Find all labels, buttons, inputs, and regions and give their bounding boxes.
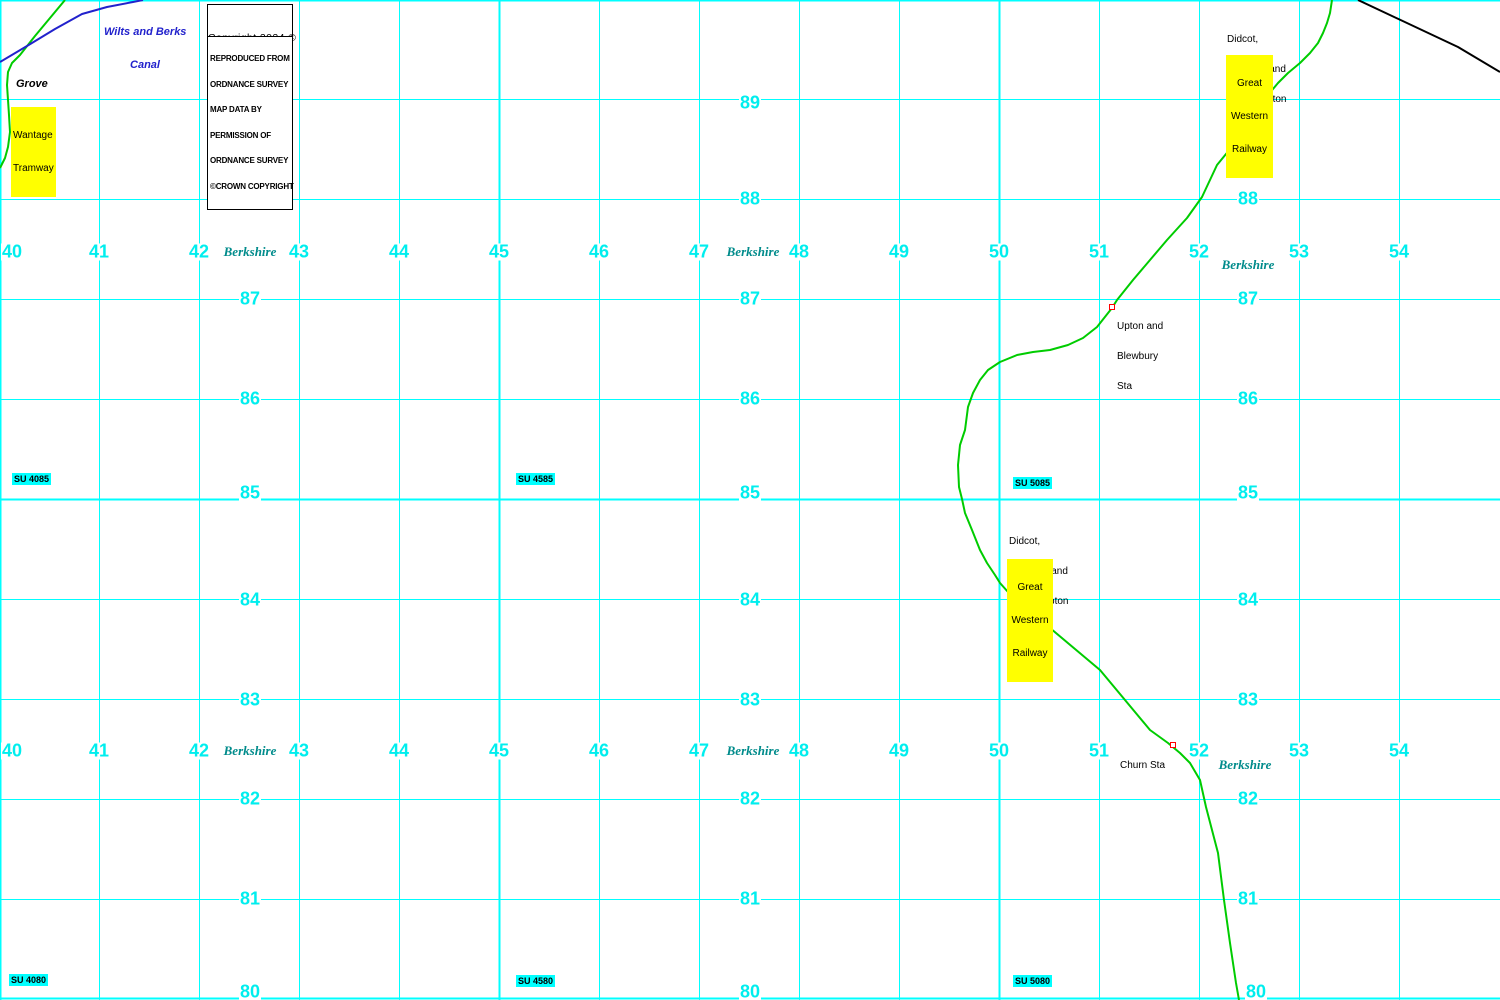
northing-label-82: 82 xyxy=(739,791,761,808)
os-attribution-line: PERMISSION OF xyxy=(210,132,292,141)
easting-label-41: 41 xyxy=(88,244,110,261)
northing-label-84: 84 xyxy=(1237,592,1259,609)
northing-label-81: 81 xyxy=(739,891,761,908)
gwr-label-line: Great xyxy=(1228,78,1271,89)
grid-ref-su-4585: SU 4585 xyxy=(516,473,555,485)
northing-label-85: 85 xyxy=(1237,485,1259,502)
station-label-line: Sta xyxy=(1117,382,1163,392)
easting-label-42: 42 xyxy=(188,244,210,261)
easting-label-40: 40 xyxy=(1,743,23,760)
map-canvas: 8989898888888787878686868585858484848383… xyxy=(0,0,1500,1000)
station-label-line: Churn Sta xyxy=(1120,761,1165,771)
gwr-label-line: Railway xyxy=(1009,648,1051,659)
wilts-and-berks-canal-label: Wilts and Berks Canal xyxy=(104,5,186,93)
northing-label-83: 83 xyxy=(739,692,761,709)
railway-label-line: Didcot, xyxy=(1009,537,1069,547)
county-label-berkshire: Berkshire xyxy=(727,743,780,759)
grove-bridge-line: Grove xyxy=(16,79,51,90)
wantage-tramway-line-text: Wantage xyxy=(13,130,54,141)
upton-and-blewbury-station-label: Upton and Blewbury Sta xyxy=(1117,302,1163,412)
canal-label-line: Canal xyxy=(104,60,186,71)
northing-label-83: 83 xyxy=(239,692,261,709)
easting-label-53: 53 xyxy=(1288,743,1310,760)
easting-label-49: 49 xyxy=(888,244,910,261)
canal-label-line: Wilts and Berks xyxy=(104,27,186,38)
easting-label-44: 44 xyxy=(388,244,410,261)
churn-station-marker xyxy=(1170,742,1176,748)
northing-label-87: 87 xyxy=(1237,291,1259,308)
northing-label-84: 84 xyxy=(239,592,261,609)
os-attribution-line: REPRODUCED FROM xyxy=(210,55,292,64)
railway-label-line: Didcot, xyxy=(1227,35,1287,45)
northing-label-87: 87 xyxy=(239,291,261,308)
os-attribution-line: MAP DATA BY xyxy=(210,106,292,115)
county-label-berkshire: Berkshire xyxy=(224,244,277,260)
easting-label-51: 51 xyxy=(1088,743,1110,760)
easting-label-45: 45 xyxy=(488,743,510,760)
easting-label-46: 46 xyxy=(588,244,610,261)
os-attribution-line: ©CROWN COPYRIGHT xyxy=(210,183,292,192)
grid-ref-su-4085: SU 4085 xyxy=(12,473,51,485)
black-railway-line xyxy=(1358,0,1500,72)
northing-label-83: 83 xyxy=(1237,692,1259,709)
easting-label-42: 42 xyxy=(188,743,210,760)
easting-label-51: 51 xyxy=(1088,244,1110,261)
easting-label-45: 45 xyxy=(488,244,510,261)
northing-label-80: 80 xyxy=(239,984,261,1000)
gwr-label-line: Western xyxy=(1009,615,1051,626)
easting-label-43: 43 xyxy=(288,743,310,760)
northing-label-85: 85 xyxy=(739,485,761,502)
easting-label-54: 54 xyxy=(1388,244,1410,261)
easting-label-54: 54 xyxy=(1388,743,1410,760)
easting-label-43: 43 xyxy=(288,244,310,261)
easting-label-50: 50 xyxy=(988,743,1010,760)
northing-label-80: 80 xyxy=(739,984,761,1000)
easting-label-52: 52 xyxy=(1188,743,1210,760)
os-attribution-line: ORDNANCE SURVEY xyxy=(210,157,292,166)
northing-label-82: 82 xyxy=(1237,791,1259,808)
easting-label-48: 48 xyxy=(788,244,810,261)
grid-ref-su-5085: SU 5085 xyxy=(1013,477,1052,489)
county-label-berkshire: Berkshire xyxy=(224,743,277,759)
northing-label-85: 85 xyxy=(239,485,261,502)
county-label-berkshire: Berkshire xyxy=(727,244,780,260)
northing-label-81: 81 xyxy=(239,891,261,908)
northing-label-81: 81 xyxy=(1237,891,1259,908)
gwr-label-line: Railway xyxy=(1228,144,1271,155)
easting-label-44: 44 xyxy=(388,743,410,760)
station-label-line: Upton and xyxy=(1117,322,1163,332)
northing-label-82: 82 xyxy=(239,791,261,808)
northing-label-88: 88 xyxy=(1237,191,1259,208)
northing-label-86: 86 xyxy=(739,391,761,408)
easting-label-49: 49 xyxy=(888,743,910,760)
northing-label-84: 84 xyxy=(739,592,761,609)
wantage-tramway-label: Wantage Tramway xyxy=(11,107,56,197)
easting-label-52: 52 xyxy=(1188,244,1210,261)
grid-ref-su-4580: SU 4580 xyxy=(516,975,555,987)
easting-label-47: 47 xyxy=(688,244,710,261)
gwr-label-line: Western xyxy=(1228,111,1271,122)
county-label-berkshire: Berkshire xyxy=(1222,257,1275,273)
northing-label-86: 86 xyxy=(239,391,261,408)
northing-label-80: 80 xyxy=(1245,984,1267,1000)
easting-label-41: 41 xyxy=(88,743,110,760)
northing-label-87: 87 xyxy=(739,291,761,308)
great-western-railway-label-mid: Great Western Railway xyxy=(1007,559,1053,682)
easting-label-48: 48 xyxy=(788,743,810,760)
grid-ref-su-4080: SU 4080 xyxy=(9,974,48,986)
county-label-berkshire: Berkshire xyxy=(1219,757,1272,773)
os-attribution-box: REPRODUCED FROM ORDNANCE SURVEY MAP DATA… xyxy=(207,36,293,210)
churn-station-label: Churn Sta xyxy=(1120,741,1165,791)
easting-label-40: 40 xyxy=(1,244,23,261)
wantage-tramway-line-text: Tramway xyxy=(13,163,54,174)
northing-label-86: 86 xyxy=(1237,391,1259,408)
grid-ref-su-5080: SU 5080 xyxy=(1013,975,1052,987)
easting-label-50: 50 xyxy=(988,244,1010,261)
easting-label-46: 46 xyxy=(588,743,610,760)
upton-and-blewbury-station-marker xyxy=(1109,304,1115,310)
gwr-label-line: Great xyxy=(1009,582,1051,593)
easting-label-53: 53 xyxy=(1288,244,1310,261)
station-label-line: Blewbury xyxy=(1117,352,1163,362)
os-attribution-line: ORDNANCE SURVEY xyxy=(210,81,292,90)
easting-label-47: 47 xyxy=(688,743,710,760)
great-western-railway-label-north: Great Western Railway xyxy=(1226,55,1273,178)
northing-label-89: 89 xyxy=(739,95,761,112)
northing-label-88: 88 xyxy=(739,191,761,208)
